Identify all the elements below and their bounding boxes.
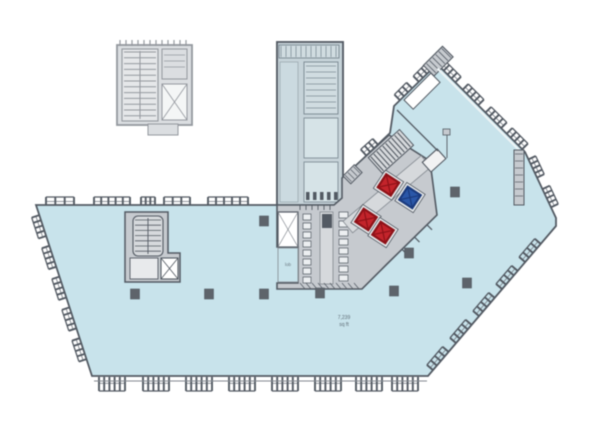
svg-text:lob: lob — [285, 262, 292, 267]
svg-text:sq ft: sq ft — [339, 322, 349, 328]
svg-text:7,239: 7,239 — [338, 315, 351, 321]
